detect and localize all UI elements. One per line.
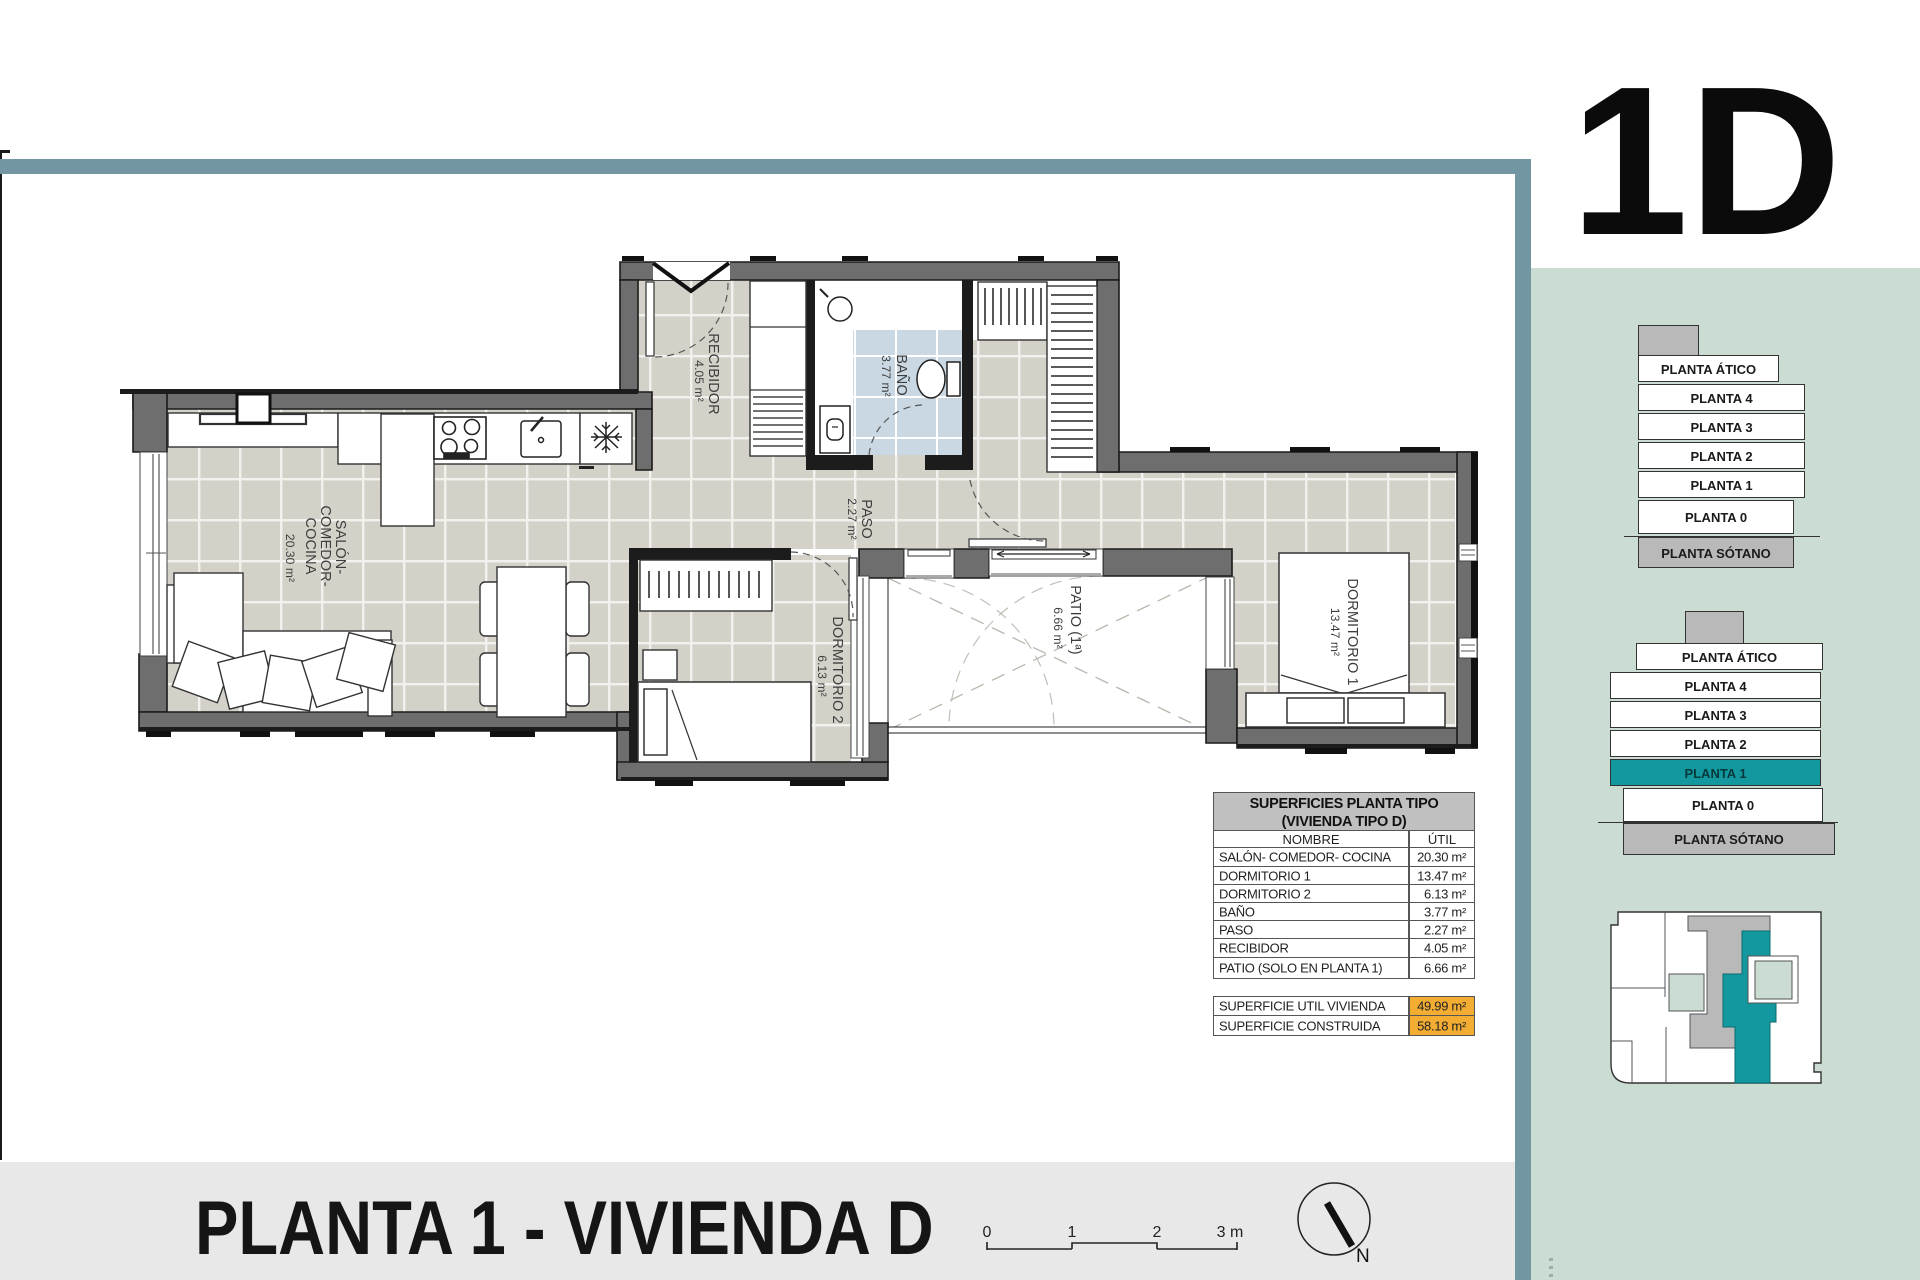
svg-text:3.77 m²: 3.77 m² [879,355,893,396]
svg-text:SALÓN-: SALÓN- [332,520,349,575]
svg-text:COCINA: COCINA [302,518,318,575]
svg-text:4.05 m²: 4.05 m² [692,360,706,401]
svg-text:2.27 m²: 2.27 m² [845,498,859,539]
svg-text:20.30 m²: 20.30 m² [283,534,297,582]
svg-text:2: 2 [1153,1224,1162,1241]
svg-text:COMEDOR-: COMEDOR- [317,505,333,586]
svg-text:RECIBIDOR: RECIBIDOR [705,333,721,414]
svg-text:0: 0 [983,1224,992,1241]
svg-text:DORMITORIO 1: DORMITORIO 1 [1344,578,1360,685]
svg-text:3 m: 3 m [1217,1224,1244,1241]
svg-text:N: N [1356,1246,1370,1267]
svg-text:1: 1 [1068,1224,1077,1241]
svg-text:DORMITORIO 2: DORMITORIO 2 [829,616,845,723]
svg-text:13.47 m²: 13.47 m² [1328,608,1342,656]
svg-text:PATIO (1ª): PATIO (1ª) [1067,585,1083,654]
svg-text:6.13 m²: 6.13 m² [815,655,829,696]
svg-text:6.66 m²: 6.66 m² [1051,607,1065,648]
svg-text:BAÑO: BAÑO [893,354,910,396]
svg-text:PASO: PASO [858,499,874,539]
